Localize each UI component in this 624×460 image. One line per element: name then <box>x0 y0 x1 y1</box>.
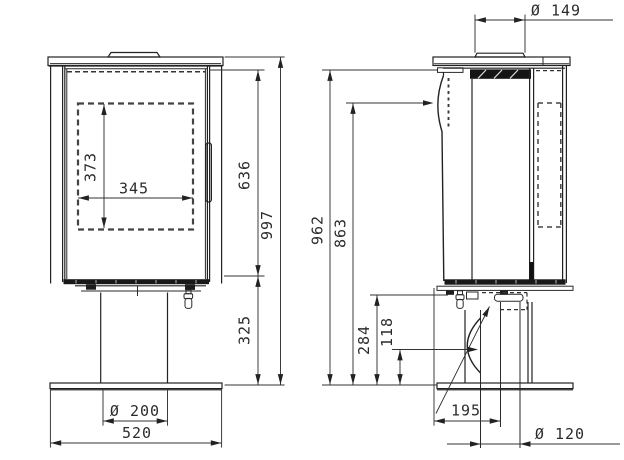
dim-flue-center-height-label: 863 <box>332 218 350 248</box>
dim-stove-bottom-height-label: 284 <box>355 325 373 355</box>
dim-glass-width-label: 345 <box>119 180 149 198</box>
dim-base-width-label: 520 <box>122 424 152 442</box>
stove-technical-drawing: 373 345 636 325 997 Ø 200 <box>0 0 624 460</box>
flue-outlet-section <box>470 69 531 78</box>
dim-flue-diameter-label: Ø 149 <box>531 2 581 20</box>
dim-outlet-diameter-label: Ø 120 <box>535 425 585 443</box>
dim-glass-height-label: 373 <box>82 152 100 182</box>
dim-body-height-label: 636 <box>236 160 254 190</box>
dim-pedestal-diameter-label: Ø 200 <box>110 402 160 420</box>
dim-total-height-label: 997 <box>258 210 276 240</box>
dim-air-inlet-height-label: 118 <box>378 317 396 347</box>
dim-body-top-height-label: 962 <box>309 215 327 245</box>
side-bottom-band <box>445 279 566 284</box>
dim-outlet-offset-label: 195 <box>451 402 481 420</box>
dim-pedestal-height-label: 325 <box>236 315 254 345</box>
